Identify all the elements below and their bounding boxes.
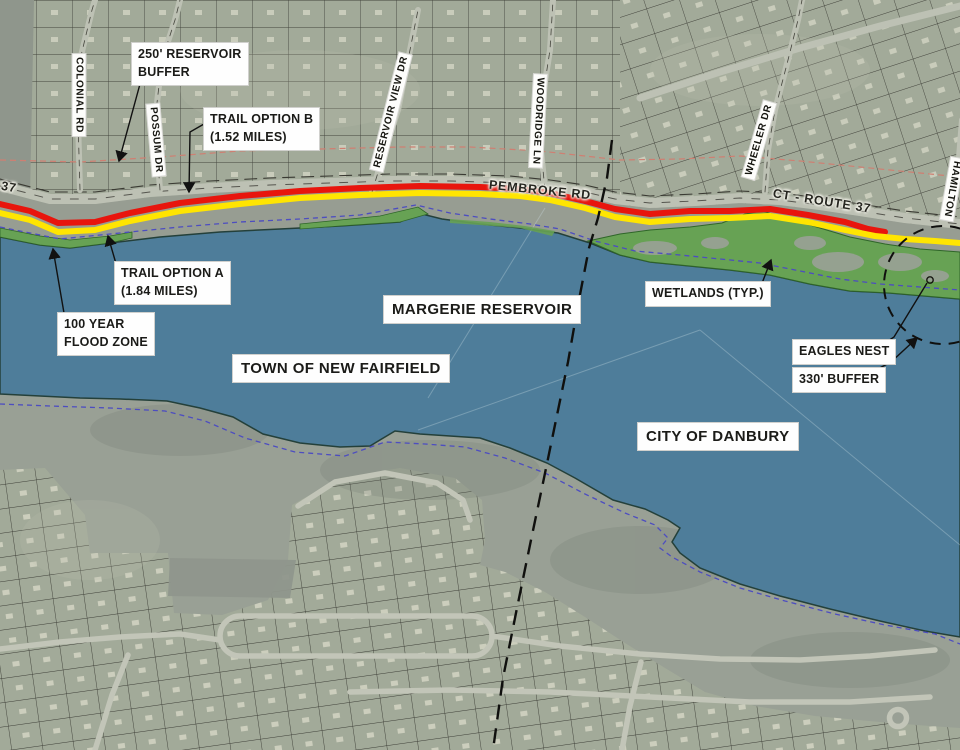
street-name: COLONIAL RD <box>74 57 85 133</box>
callout-250-reservoir-buffer: 250' RESERVOIR BUFFER <box>131 42 249 86</box>
callout-line: (1.52 MILES) <box>210 130 287 144</box>
callout-330-buffer: 330' BUFFER <box>792 367 886 393</box>
callout-line: 100 YEAR <box>64 317 124 331</box>
callout-line: BUFFER <box>138 65 190 79</box>
callout-line: 330' BUFFER <box>799 372 879 386</box>
callout-line: 250' RESERVOIR <box>138 47 242 61</box>
region-name: MARGERIE RESERVOIR <box>392 301 572 318</box>
label-margerie-reservoir: MARGERIE RESERVOIR <box>383 295 581 324</box>
callout-line: WETLANDS (TYP.) <box>652 286 764 300</box>
street-name: WOODRIDGE LN <box>530 77 546 165</box>
road-name: 37 <box>0 179 18 195</box>
callout-eagles-nest: EAGLES NEST <box>792 339 896 365</box>
reservoir-trail-map: 250' RESERVOIR BUFFER TRAIL OPTION B (1.… <box>0 0 960 750</box>
region-name: CITY OF DANBURY <box>646 428 790 445</box>
callout-100-year-flood-zone: 100 YEAR FLOOD ZONE <box>57 312 155 356</box>
street-label-colonial-rd: COLONIAL RD <box>72 53 87 137</box>
callout-line: TRAIL OPTION B <box>210 112 313 126</box>
label-town-of-new-fairfield: TOWN OF NEW FAIRFIELD <box>232 354 450 383</box>
region-name: TOWN OF NEW FAIRFIELD <box>241 360 441 377</box>
label-city-of-danbury: CITY OF DANBURY <box>637 422 799 451</box>
callout-wetlands: WETLANDS (TYP.) <box>645 281 771 307</box>
callout-line: (1.84 MILES) <box>121 284 198 298</box>
callout-line: EAGLES NEST <box>799 344 889 358</box>
road-label-route-37-left-edge: 37 <box>0 179 18 195</box>
callout-trail-option-b: TRAIL OPTION B (1.52 MILES) <box>203 107 320 151</box>
callout-trail-option-a: TRAIL OPTION A (1.84 MILES) <box>114 261 231 305</box>
callout-line: FLOOD ZONE <box>64 335 148 349</box>
callout-line: TRAIL OPTION A <box>121 266 224 280</box>
